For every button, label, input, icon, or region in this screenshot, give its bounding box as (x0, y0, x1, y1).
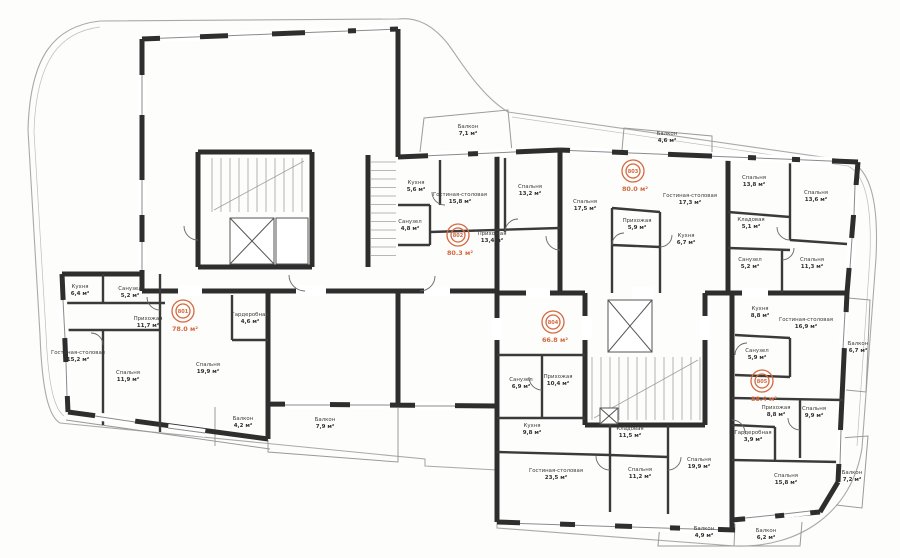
apartment-badge: 80280.3 м² (447, 224, 473, 257)
room-label: Кухня9,8 м² (523, 423, 542, 436)
room-name: Санузел (118, 286, 141, 292)
room-label: Прихожая11,7 м² (134, 316, 163, 329)
room-label: Кухня8,8 м² (751, 306, 770, 319)
room-area: 15,2 м² (67, 356, 90, 363)
door-swing (788, 418, 800, 430)
room-label: Гостиная-столовая23,5 м² (529, 468, 583, 481)
room-label: Санузел5,2 м² (738, 257, 761, 270)
room-area: 13,8 м² (743, 181, 766, 188)
room-name: Балкон (694, 526, 715, 532)
room-name: Прихожая (134, 316, 163, 322)
room-name: Кухня (408, 180, 425, 186)
room-name: Спальня (116, 370, 140, 376)
door-opening (424, 286, 450, 296)
room-label: Кухня6,7 м² (677, 233, 696, 246)
room-label: Прихожая13,4 м² (478, 231, 507, 244)
room-area: 6,7 м² (849, 347, 868, 354)
room-name: Гостиная-столовая (51, 350, 105, 356)
door-swing (612, 233, 624, 245)
room-name: Гостиная-столовая (433, 192, 487, 198)
door-opening (742, 288, 768, 298)
room-name: Кухня (72, 284, 89, 290)
windows (63, 29, 855, 529)
room-area: 7,2 м² (843, 476, 862, 483)
room-label: Гардеробная4,6 м² (231, 312, 268, 325)
room-name: Гардеробная (231, 312, 268, 318)
room-area: 5,1 м² (742, 223, 761, 230)
door-opening (178, 285, 202, 296)
room-name: Спальня (687, 457, 711, 463)
room-name: Спальня (742, 175, 766, 181)
plot-boundary (28, 19, 877, 546)
apartment-badge: 80178.0 м² (172, 300, 198, 333)
floor-plan: Кухня6,4 м²Санузел5,2 м²Прихожая11,7 м²Г… (0, 0, 900, 558)
room-name: Гостиная-столовая (663, 193, 717, 199)
room-name: Кухня (752, 306, 769, 312)
room-area: 11,5 м² (619, 432, 642, 439)
room-label: Спальня13,6 м² (804, 190, 828, 203)
room-area: 6,7 м² (677, 239, 696, 246)
room-area: 6,4 м² (71, 290, 90, 297)
room-name: Санузел (745, 348, 768, 354)
room-area: 15,8 м² (775, 479, 798, 486)
room-area: 8,8 м² (751, 312, 770, 319)
floor-plan-drawing: Кухня6,4 м²Санузел5,2 м²Прихожая11,7 м²Г… (0, 0, 900, 558)
room-label: Санузел5,2 м² (118, 286, 141, 299)
room-area: 10,4 м² (547, 380, 570, 387)
apartment-number: 802 (453, 233, 464, 239)
stair-direction-line (214, 161, 304, 210)
room-label: Прихожая8,8 м² (762, 405, 791, 418)
room-label: Гостиная-столовая16,9 м² (779, 317, 833, 330)
room-label: Санузел5,9 м² (745, 348, 768, 361)
room-name: Прихожая (623, 218, 652, 224)
room-label: Спальня11,9 м² (116, 370, 140, 383)
apartment-number: 801 (178, 309, 189, 315)
room-area: 4,6 м² (241, 318, 260, 325)
room-label: Балкон7,1 м² (458, 124, 479, 137)
room-area: 4,6 м² (658, 137, 677, 144)
room-area: 6,9 м² (512, 383, 531, 390)
room-area: 9,9 м² (805, 412, 824, 419)
room-area: 4,9 м² (695, 532, 714, 539)
room-area: 17,3 м² (679, 199, 702, 206)
room-name: Кладовая (737, 217, 764, 223)
door-swing (777, 227, 790, 240)
room-area: 11,9 м² (117, 376, 140, 383)
room-area: 7,9 м² (316, 423, 335, 430)
room-label: Спальня11,2 м² (628, 467, 652, 480)
room-area: 5,9 м² (628, 224, 647, 231)
room-label: Балкон4,6 м² (657, 131, 678, 144)
room-area: 11,3 м² (801, 263, 824, 270)
room-name: Спальня (804, 190, 828, 196)
room-name: Санузел (738, 257, 761, 263)
door-swing (668, 457, 681, 470)
room-name: Балкон (458, 124, 479, 130)
room-name: Санузел (509, 377, 532, 383)
room-area: 13,6 м² (805, 196, 828, 203)
room-area: 5,9 м² (748, 354, 767, 361)
room-label: Спальня17,5 м² (573, 199, 597, 212)
room-label: Гостиная-столовая17,3 м² (663, 193, 717, 206)
room-name: Прихожая (762, 405, 791, 411)
room-label: Гардеробная3,9 м² (734, 430, 771, 443)
door-swing (596, 456, 610, 470)
room-name: Прихожая (478, 231, 507, 237)
room-area: 4,8 м² (401, 225, 420, 232)
door-opening (632, 287, 654, 299)
room-area: 13,4 м² (481, 237, 504, 244)
room-label: Прихожая10,4 м² (544, 374, 573, 387)
room-area: 11,7 м² (137, 322, 160, 329)
room-name: Спальня (628, 467, 652, 473)
room-area: 16,9 м² (795, 323, 818, 330)
room-label: Спальня9,9 м² (802, 406, 826, 419)
room-label: Балкон6,7 м² (848, 341, 869, 354)
room-label: Кухня6,4 м² (71, 284, 90, 297)
room-area: 19,9 м² (197, 368, 220, 375)
room-name: Гостиная-столовая (529, 468, 583, 474)
room-label: Прихожая5,9 м² (623, 218, 652, 231)
room-name: Балкон (842, 470, 863, 476)
door-opening (582, 316, 592, 340)
room-label: Санузел4,8 м² (398, 219, 421, 232)
room-label: Кладовая11,5 м² (616, 426, 643, 439)
apartment-total-area: 78.0 м² (172, 325, 198, 333)
room-area: 19,9 м² (688, 463, 711, 470)
room-area: 5,2 м² (121, 292, 140, 299)
apartment-badge: 80466.8 м² (542, 311, 568, 344)
room-label: Санузел6,9 м² (509, 377, 532, 390)
room-area: 5,6 м² (407, 186, 426, 193)
room-name: Кладовая (616, 426, 643, 432)
room-name: Балкон (233, 416, 254, 422)
room-name: Спальня (800, 257, 824, 263)
room-area: 6,2 м² (757, 534, 776, 541)
room-name: Спальня (573, 199, 597, 205)
room-area: 8,8 м² (767, 411, 786, 418)
room-area: 13,2 м² (519, 190, 542, 197)
apartment-number: 803 (628, 169, 639, 175)
room-name: Спальня (802, 406, 826, 412)
room-area: 17,5 м² (574, 205, 597, 212)
room-label: Спальня13,2 м² (518, 184, 542, 197)
room-name: Прихожая (544, 374, 573, 380)
room-label: Гостиная-столовая15,2 м² (51, 350, 105, 363)
room-name: Балкон (848, 341, 869, 347)
room-area: 4,2 м² (234, 422, 253, 429)
apartment-number: 805 (757, 379, 768, 385)
apartment-total-area: 80.0 м² (622, 185, 648, 193)
door-swing (91, 333, 103, 345)
room-area: 3,9 м² (744, 436, 763, 443)
room-label: Балкон6,2 м² (756, 528, 777, 541)
room-label: Кладовая5,1 м² (737, 217, 764, 230)
room-label: Кухня5,6 м² (407, 180, 426, 193)
room-name: Балкон (756, 528, 777, 534)
door-opening (492, 318, 502, 340)
room-area: 23,5 м² (545, 474, 568, 481)
room-name: Спальня (774, 473, 798, 479)
apartment-total-area: 80.3 м² (447, 249, 473, 257)
room-label: Спальня19,9 м² (196, 362, 220, 375)
room-name: Кухня (524, 423, 541, 429)
room-label: Спальня11,3 м² (800, 257, 824, 270)
room-name: Кухня (678, 233, 695, 239)
room-name: Гардеробная (734, 430, 771, 436)
room-area: 9,8 м² (523, 429, 542, 436)
room-label: Спальня15,8 м² (774, 473, 798, 486)
door-opening (700, 316, 710, 340)
room-area: 11,2 м² (629, 473, 652, 480)
room-label: Балкон4,2 м² (233, 416, 254, 429)
room-area: 5,2 м² (741, 263, 760, 270)
apartment-total-area: 88.4 м² (751, 395, 777, 403)
elevator-shaft (276, 218, 308, 264)
room-label: Балкон7,9 м² (315, 417, 336, 430)
apartment-badge: 80380.0 м² (622, 160, 648, 193)
room-area: 15,8 м² (449, 198, 472, 205)
room-name: Балкон (315, 417, 336, 423)
room-label: Балкон4,9 м² (694, 526, 715, 539)
room-label: Спальня13,8 м² (742, 175, 766, 188)
room-name: Санузел (398, 219, 421, 225)
room-label: Спальня19,9 м² (687, 457, 711, 470)
door-opening (526, 288, 550, 298)
apartment-number: 804 (548, 320, 559, 326)
room-name: Спальня (196, 362, 220, 368)
room-label: Балкон7,2 м² (842, 470, 863, 483)
room-name: Спальня (518, 184, 542, 190)
walls (62, 29, 858, 530)
room-area: 7,1 м² (459, 130, 478, 137)
room-name: Балкон (657, 131, 678, 137)
door-swing (660, 235, 672, 247)
room-name: Гостиная-столовая (779, 317, 833, 323)
apartment-total-area: 66.8 м² (542, 336, 568, 344)
